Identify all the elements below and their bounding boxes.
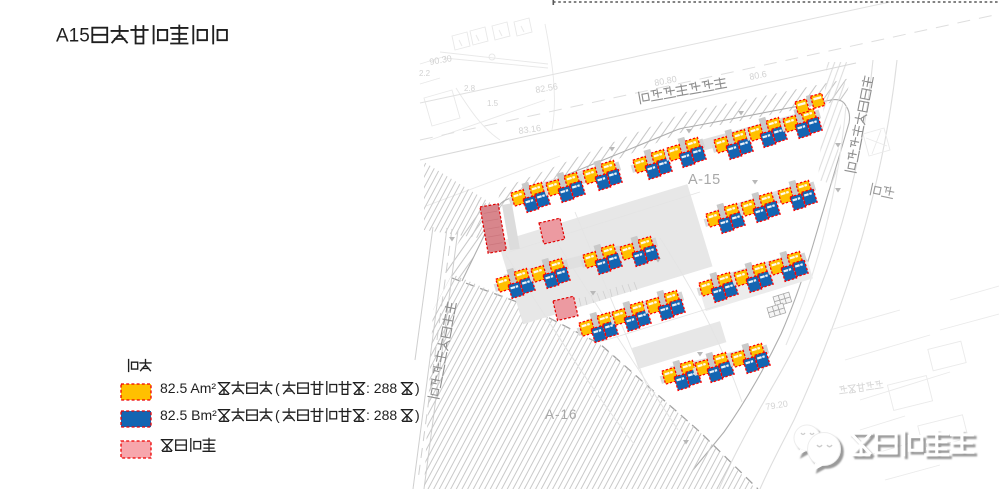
svg-text:2.2: 2.2 xyxy=(419,69,431,78)
svg-text:): ) xyxy=(415,380,420,396)
svg-text:A-15: A-15 xyxy=(688,172,721,188)
svg-text:82.5 Bm²: 82.5 Bm² xyxy=(160,407,217,423)
svg-text:(: ( xyxy=(275,407,280,423)
svg-text:: 288: : 288 xyxy=(366,380,397,396)
svg-text:A-16: A-16 xyxy=(545,407,578,422)
svg-text:(: ( xyxy=(275,380,280,396)
svg-text:A15: A15 xyxy=(56,26,90,47)
svg-text:: 288: : 288 xyxy=(366,407,397,423)
svg-text:82.5 Am²: 82.5 Am² xyxy=(160,380,216,396)
svg-text:): ) xyxy=(415,407,420,423)
svg-text:1.5: 1.5 xyxy=(487,99,499,108)
